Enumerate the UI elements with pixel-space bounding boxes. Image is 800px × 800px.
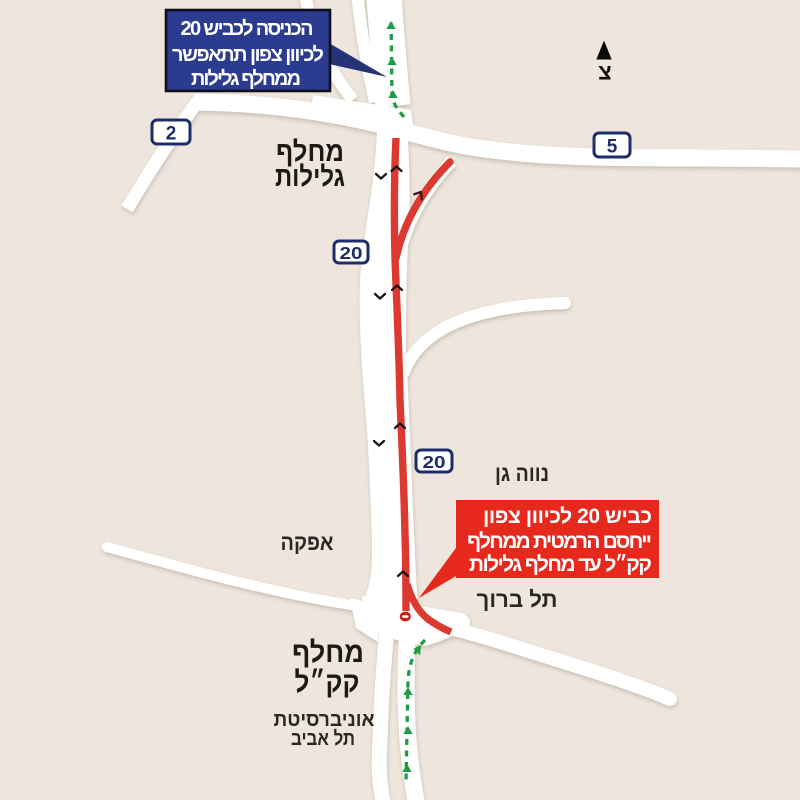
svg-text:20: 20	[340, 243, 363, 263]
svg-text:כביש 20 לכיוון צפון: כביש 20 לכיוון צפון	[483, 505, 652, 528]
svg-text:תל אביב: תל אביב	[291, 728, 355, 750]
svg-text:ממחלף גלילות: ממחלף גלילות	[191, 68, 301, 90]
svg-text:קק״ל עד מחלף גלילות: קק״ל עד מחלף גלילות	[469, 553, 652, 576]
svg-text:אפקה: אפקה	[281, 530, 334, 555]
svg-text:20: 20	[423, 452, 446, 472]
svg-text:צ: צ	[598, 60, 611, 85]
svg-text:מחלף: מחלף	[292, 637, 364, 669]
svg-text:2: 2	[166, 124, 177, 145]
svg-text:נווה גן: נווה גן	[495, 461, 549, 486]
svg-text:ייחסם הרמטית ממחלף: ייחסם הרמטית ממחלף	[467, 530, 652, 553]
svg-text:לכיוון צפון תתאפשר: לכיוון צפון תתאפשר	[172, 44, 324, 66]
svg-text:גלילות: גלילות	[275, 161, 345, 192]
svg-text:תל ברוך: תל ברוך	[477, 587, 558, 612]
svg-text:5: 5	[607, 137, 618, 158]
svg-text:קק״ל: קק״ל	[295, 667, 360, 699]
svg-text:הכניסה לכביש 20: הכניסה לכביש 20	[181, 18, 314, 40]
